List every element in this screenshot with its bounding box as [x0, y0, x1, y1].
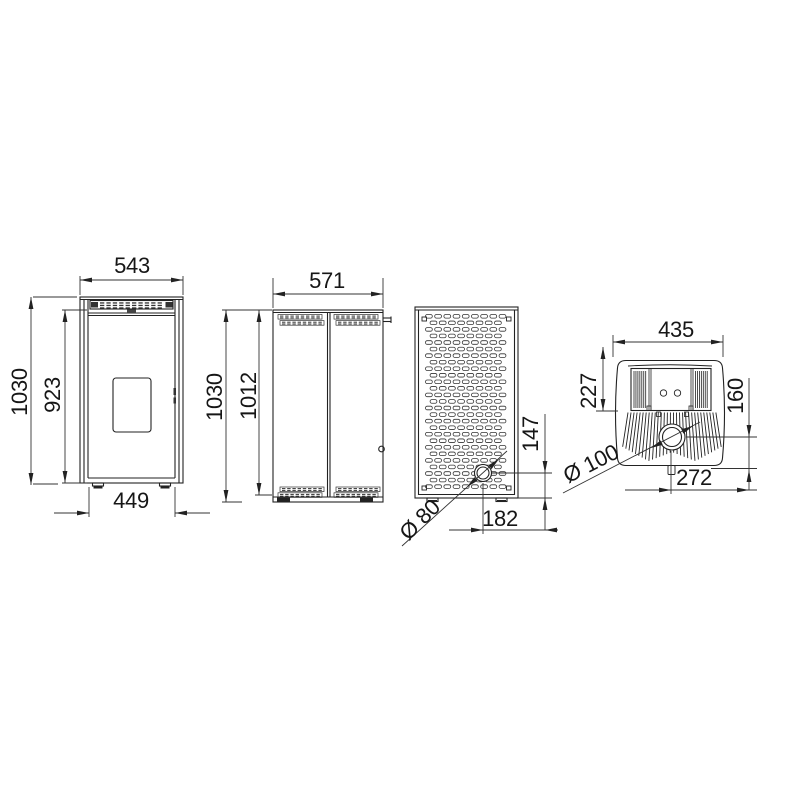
door-hinge-mark [174, 388, 177, 395]
top-rear-tab [668, 466, 675, 475]
top-control-hole [674, 390, 680, 396]
front-door-window [113, 378, 151, 432]
side-grille-bars [278, 315, 380, 498]
side-view [273, 310, 391, 502]
front-foot-right [160, 483, 171, 486]
top-control-hole [660, 390, 666, 396]
top-panel-hatch [634, 371, 707, 408]
side-foot-left [277, 498, 290, 503]
front-grille-slats [100, 302, 162, 308]
side-foot-right [360, 498, 373, 503]
front-view [80, 297, 183, 489]
front-body-outline [80, 297, 183, 483]
technical-drawing: 543 1030 923 449 571 1030 1012 147 Ø 80 … [0, 0, 800, 800]
drawing-geometry [0, 0, 800, 800]
front-foot-left [93, 483, 104, 486]
